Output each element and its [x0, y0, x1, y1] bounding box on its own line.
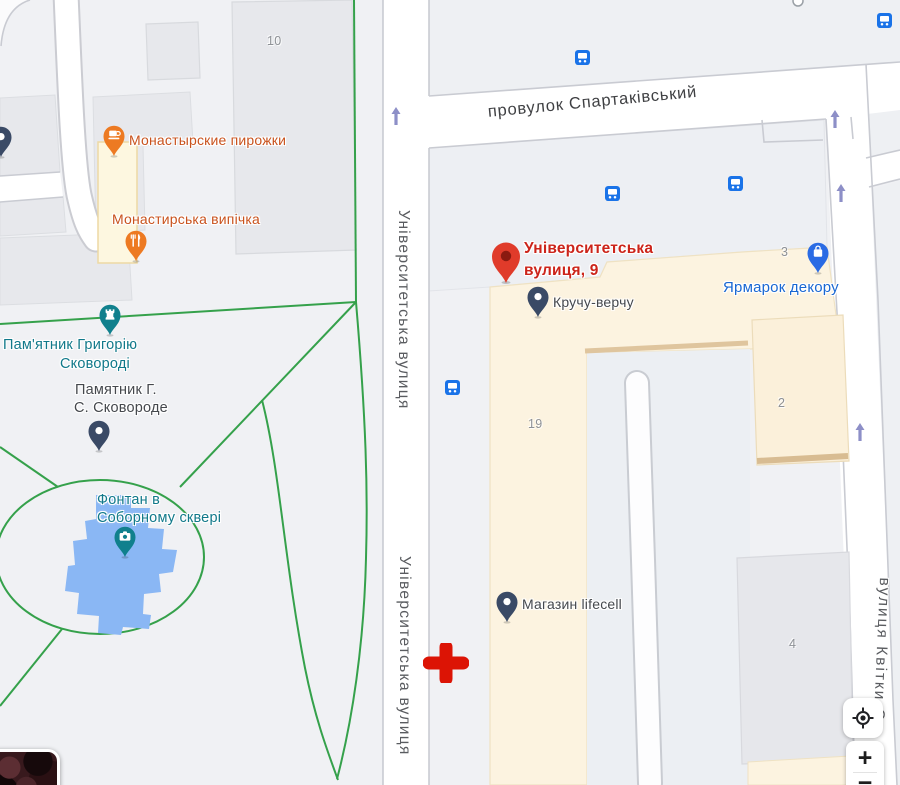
poi-label-yarmarok-dekoru[interactable]: Ярмарок декору	[723, 279, 839, 296]
building-small-square	[146, 22, 200, 80]
road-corner-topleft	[0, 0, 30, 46]
street-label-universytetska-2: Університетська вулиця	[395, 556, 413, 756]
satellite-layer-toggle[interactable]	[0, 749, 60, 785]
house-number-19: 19	[528, 417, 543, 431]
poi-label-pamyatnik-gs-line1[interactable]: Памятник Г.	[75, 382, 157, 398]
my-location-icon	[851, 706, 875, 730]
poi-pin-cut-left-icon[interactable]	[0, 124, 14, 160]
one-way-arrow-icon	[828, 108, 842, 130]
cut-dot-top	[793, 0, 803, 6]
restaurant-pin-icon[interactable]	[123, 228, 149, 264]
map-canvas[interactable]: провулок Спартаківський Університетська …	[0, 0, 900, 785]
house-number-2: 2	[778, 396, 785, 410]
house-number-4: 4	[789, 637, 796, 651]
cursor-cross-icon	[423, 643, 469, 683]
cafe-pin-icon[interactable]	[101, 123, 127, 159]
house-number-10: 10	[267, 34, 282, 48]
building-2	[752, 315, 849, 465]
destination-pin-icon[interactable]	[489, 238, 523, 284]
poi-label-pamyatnyk-hryhoriyu-line2[interactable]: Сковороді	[60, 356, 130, 372]
bus-stop-icon[interactable]	[575, 50, 590, 65]
bus-stop-icon[interactable]	[445, 380, 460, 395]
one-way-arrow-icon	[853, 421, 867, 443]
castle-pin-icon[interactable]	[97, 302, 123, 338]
lifecell-pin-icon[interactable]	[494, 589, 520, 625]
house-number-3: 3	[781, 245, 788, 259]
street-label-universytetska-1: Університетська вулиця	[394, 210, 412, 410]
shopping-bag-pin-icon[interactable]	[805, 240, 831, 276]
destination-label-line2[interactable]: вулиця, 9	[524, 262, 599, 280]
poi-label-kruchu-verchu[interactable]: Кручу-верчу	[553, 294, 634, 310]
my-location-button[interactable]	[843, 698, 883, 738]
one-way-arrow-icon	[834, 182, 848, 204]
courtyard	[587, 349, 750, 785]
building-4	[737, 552, 853, 764]
poi-label-fontan-line1[interactable]: Фонтан в	[97, 492, 160, 508]
one-way-arrow-icon	[389, 105, 403, 127]
bus-stop-icon[interactable]	[877, 13, 892, 28]
camera-pin-icon[interactable]	[112, 524, 138, 560]
bus-stop-icon[interactable]	[605, 186, 620, 201]
poi-label-monastyrska-vypichka[interactable]: Монастирська випічка	[112, 211, 260, 227]
destination-label-line1[interactable]: Університетська	[524, 240, 653, 258]
poi-label-pamyatnyk-hryhoriyu-line1[interactable]: Пам'ятник Григорію	[3, 337, 137, 353]
poi-label-monastyrskie-pirozhki[interactable]: Монастырские пирожки	[129, 132, 286, 148]
monument-pin-icon[interactable]	[86, 418, 112, 454]
poi-label-lifecell[interactable]: Магазин lifecell	[522, 596, 622, 612]
poi-label-pamyatnik-gs-line2[interactable]: С. Сковороде	[74, 400, 168, 416]
zoom-out-button[interactable]: −	[846, 767, 884, 785]
driveway	[637, 383, 650, 783]
bus-stop-icon[interactable]	[728, 176, 743, 191]
kruchu-verchu-pin-icon[interactable]	[525, 284, 551, 320]
